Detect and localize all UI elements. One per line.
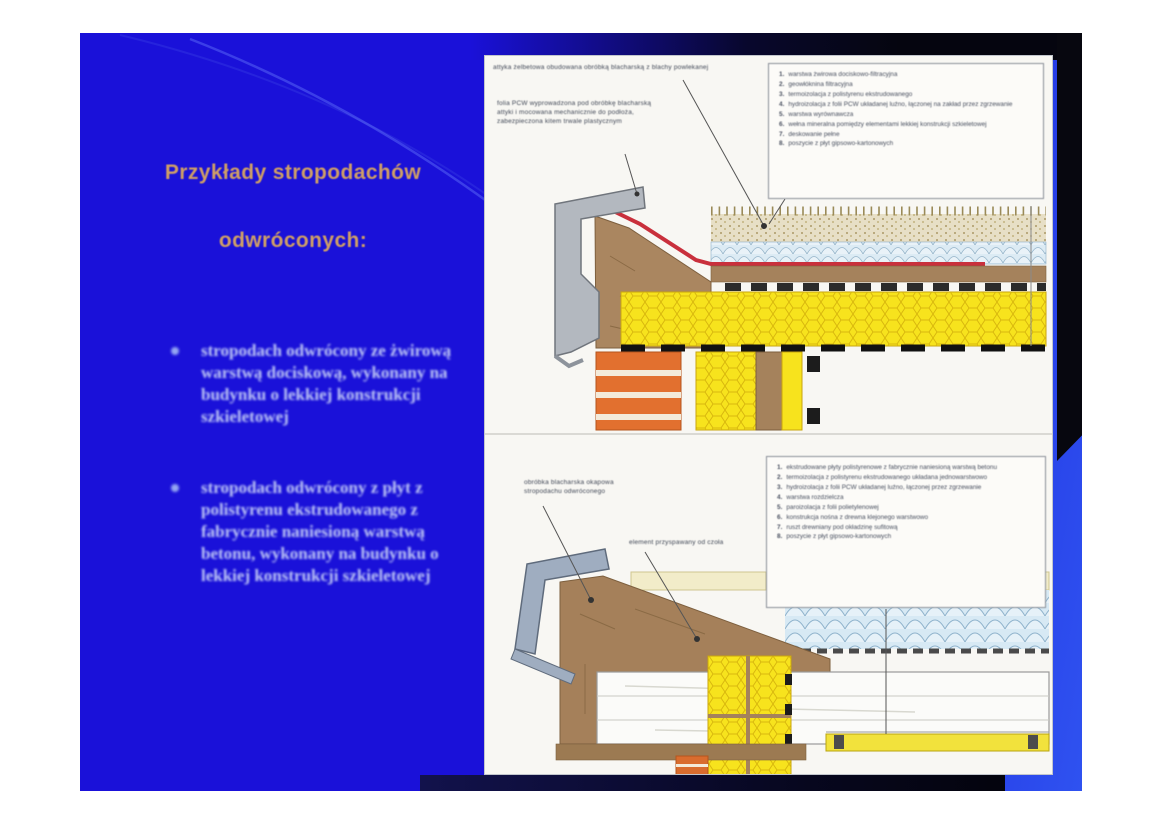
legend-item: deskowanie pełne	[779, 130, 1035, 140]
legend-item: ekstrudowane płyty polistyrenowe z fabry…	[777, 463, 1037, 473]
upper-annotation-membrane: folia PCW wyprowadzona pod obróbkę blach…	[497, 100, 669, 126]
bullet-marker-icon	[171, 484, 179, 492]
mineral-wool-layer	[621, 292, 1046, 348]
legend-item: termoizolacja z polistyrenu ekstrudowane…	[779, 90, 1035, 100]
bullet-marker-icon	[171, 347, 179, 355]
diagram-divider	[485, 433, 1052, 435]
slide-title: Przykłady stropodachów odwróconych:	[98, 161, 488, 253]
bullet-text-2: stropodach odwrócony z płyt z polistyren…	[201, 478, 439, 585]
lower-annotation-flashing: obróbka blacharska okapowa stropodachu o…	[524, 479, 649, 497]
diagram-panel: attyka żelbetowa obudowana obróbką blach…	[484, 55, 1053, 775]
upper-legend-box: warstwa żwirowa dociskowo-filtracyjna ge…	[768, 63, 1044, 199]
brick-wall	[596, 352, 681, 430]
slide: Przykłady stropodachów odwróconych: stro…	[80, 33, 1082, 791]
legend-item: konstrukcja nośna z drewna klejonego war…	[777, 513, 1037, 523]
substrate-board-band	[711, 266, 1046, 287]
right-shadow-band	[1057, 33, 1082, 461]
page-background: Przykłady stropodachów odwróconych: stro…	[0, 0, 1169, 826]
slide-title-line1: Przykłady stropodachów	[98, 161, 488, 185]
legend-item: warstwa rozdzielcza	[777, 493, 1037, 503]
bullet-text-1: stropodach odwrócony ze żwirową warstwą …	[201, 341, 451, 426]
legend-item: poszycie z płyt gipsowo-kartonowych	[779, 139, 1035, 149]
legend-item: hydroizolacja z folii PCW układanej luźn…	[779, 100, 1035, 110]
legend-item: poszycie z płyt gipsowo-kartonowych	[777, 532, 1037, 542]
legend-item: hydroizolacja z folii PCW układanej luźn…	[777, 483, 1037, 493]
legend-item: ruszt drewniany pod okładzinę sufitową	[777, 523, 1037, 533]
xps-insulation-layer	[711, 242, 1046, 264]
slide-title-line2: odwróconych:	[98, 229, 488, 253]
legend-item: termoizolacja z polistyrenu ekstrudowane…	[777, 473, 1037, 483]
bullet-item-1: stropodach odwrócony ze żwirową warstwą …	[201, 340, 453, 428]
legend-item: wełna mineralna pomiędzy elementami lekk…	[779, 120, 1035, 130]
legend-item: paroizolacja z folii polietylenowej	[777, 503, 1037, 513]
lower-legend-box: ekstrudowane płyty polistyrenowe z fabry…	[766, 456, 1046, 608]
legend-item: warstwa wyrównawcza	[779, 110, 1035, 120]
insulation-strip-right	[826, 732, 1049, 751]
upper-annotation-parapet: attyka żelbetowa obudowana obróbką blach…	[493, 64, 718, 73]
legend-item: geowłóknina filtracyjna	[779, 80, 1035, 90]
bottom-shadow-band	[420, 775, 1005, 791]
bullet-item-2: stropodach odwrócony z płyt z polistyren…	[201, 477, 453, 587]
glulam-beam	[597, 672, 1049, 744]
legend-item: warstwa żwirowa dociskowo-filtracyjna	[779, 70, 1035, 80]
insulation-blocks-and-post	[696, 352, 820, 430]
